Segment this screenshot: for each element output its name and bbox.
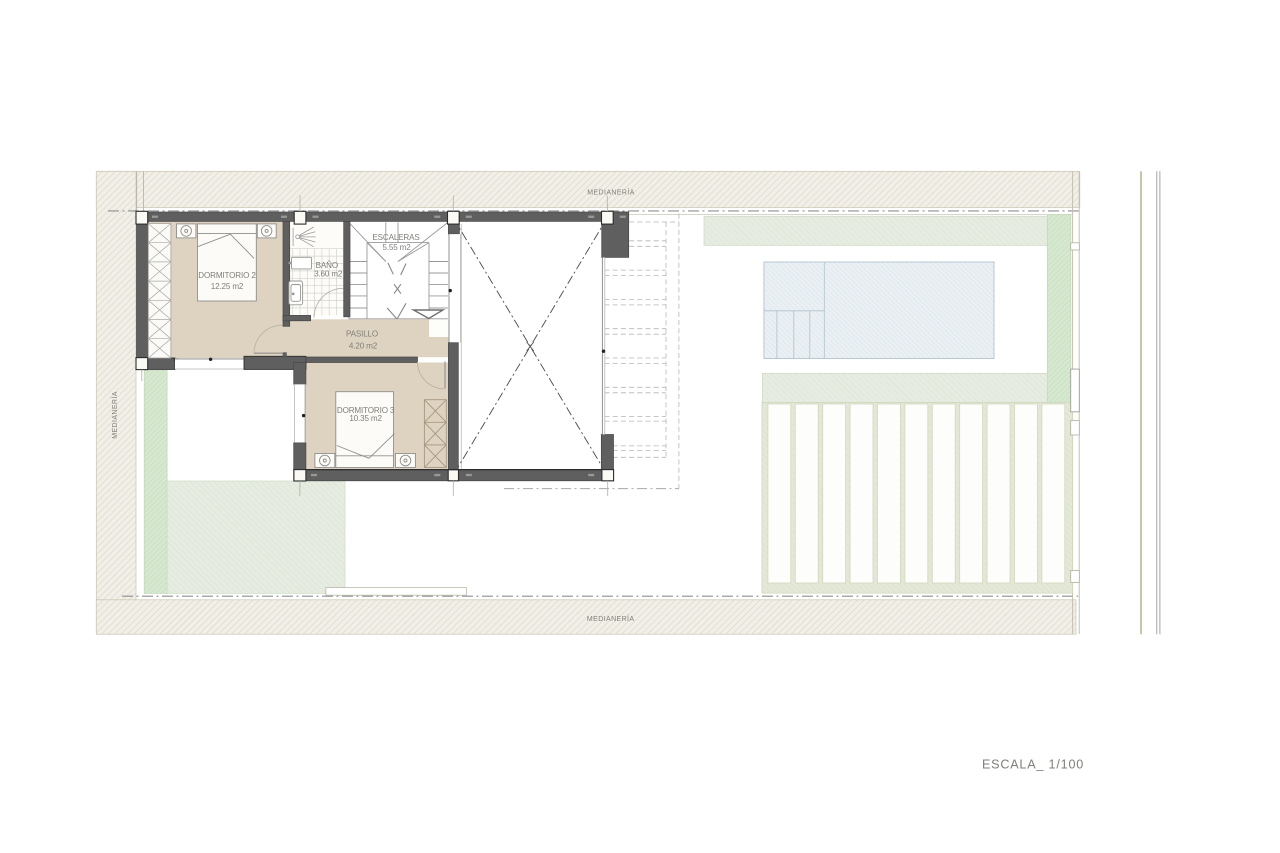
svg-text:ESCALERAS: ESCALERAS bbox=[372, 233, 420, 242]
svg-text:MEDIANERÍA: MEDIANERÍA bbox=[587, 188, 635, 197]
svg-text:ESCALA_ 1/100: ESCALA_ 1/100 bbox=[982, 758, 1084, 772]
svg-text:10.35 m2: 10.35 m2 bbox=[349, 414, 382, 423]
svg-text:MEDIANERÍA: MEDIANERÍA bbox=[110, 391, 119, 439]
svg-text:PASILLO: PASILLO bbox=[346, 330, 378, 339]
svg-text:4.20 m2: 4.20 m2 bbox=[349, 341, 378, 350]
svg-text:12.25 m2: 12.25 m2 bbox=[211, 282, 244, 291]
svg-text:3.60 m2: 3.60 m2 bbox=[314, 269, 343, 278]
svg-text:DORMITORIO 2: DORMITORIO 2 bbox=[198, 271, 256, 280]
svg-text:MEDIANERÍA: MEDIANERÍA bbox=[587, 614, 635, 623]
svg-text:5.55 m2: 5.55 m2 bbox=[382, 243, 411, 252]
